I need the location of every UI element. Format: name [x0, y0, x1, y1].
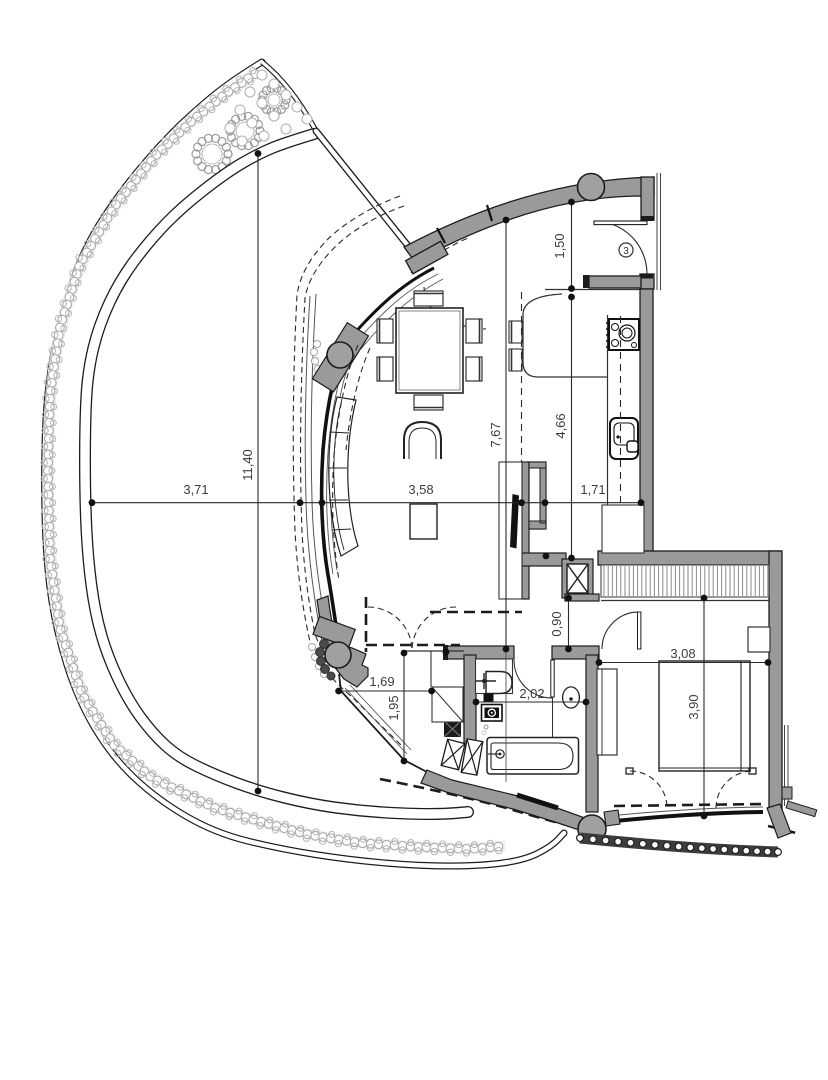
svg-text:1,69: 1,69 — [369, 674, 394, 689]
svg-text:0,90: 0,90 — [549, 611, 564, 636]
svg-text:1,50: 1,50 — [552, 233, 567, 258]
svg-text:3,08: 3,08 — [670, 646, 695, 661]
svg-text:2,02: 2,02 — [519, 686, 544, 701]
svg-text:3,71: 3,71 — [183, 482, 208, 497]
svg-text:7,67: 7,67 — [488, 422, 503, 447]
svg-text:3,58: 3,58 — [408, 482, 433, 497]
svg-text:3,90: 3,90 — [686, 694, 701, 719]
svg-text:4,66: 4,66 — [553, 413, 568, 438]
svg-text:11,40: 11,40 — [240, 449, 255, 481]
svg-text:1,95: 1,95 — [386, 695, 401, 720]
svg-text:1,71: 1,71 — [580, 482, 605, 497]
svg-text:3: 3 — [623, 246, 629, 257]
